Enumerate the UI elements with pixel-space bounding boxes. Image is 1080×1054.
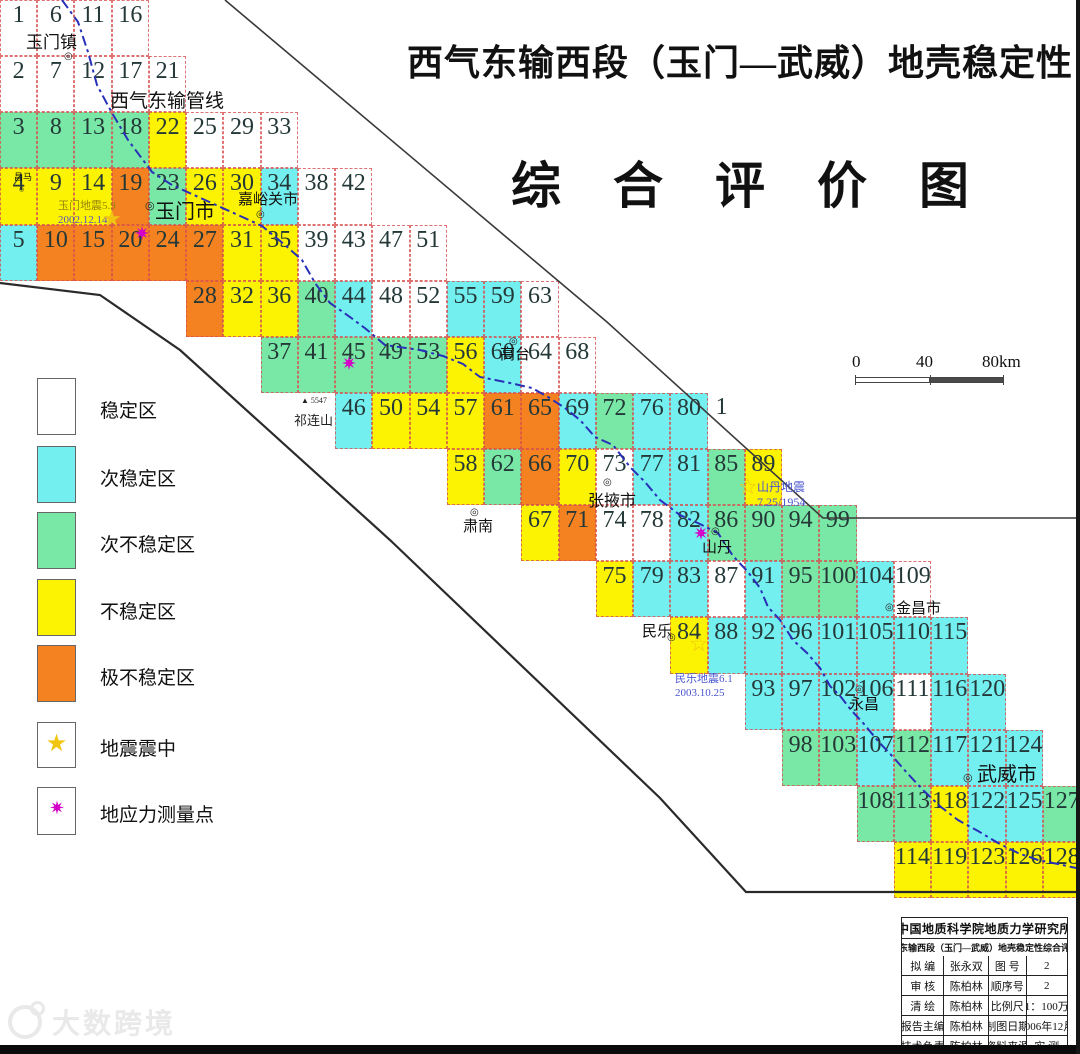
city-marker-icon: ◎ bbox=[963, 773, 973, 784]
grid-cell: 28 bbox=[186, 281, 223, 337]
table-cell: 审 核 bbox=[902, 976, 943, 995]
table-cell: 2006年12月 bbox=[1026, 1016, 1068, 1035]
bottom-frame-bar bbox=[0, 1045, 1080, 1054]
grid-cell: 92 bbox=[745, 617, 782, 673]
table-row: 拟 编张永双图 号2 bbox=[902, 956, 1067, 975]
grid-cell: 42 bbox=[335, 168, 372, 224]
city-marker-icon: ◎ bbox=[470, 508, 479, 518]
grid-cell: 88 bbox=[708, 617, 745, 673]
city-label: 永昌 bbox=[849, 698, 879, 713]
grid-cell: 58 bbox=[447, 449, 484, 505]
grid-cell: 90 bbox=[745, 505, 782, 561]
grid-cell: 118 bbox=[931, 786, 968, 842]
grid-cell: 111 bbox=[894, 674, 931, 730]
table-cell: 拟 编 bbox=[902, 956, 943, 975]
grid-cell: 7 bbox=[37, 56, 74, 112]
legend-swatch-o bbox=[37, 645, 76, 702]
mountain-peak-icon: ▲ 5547 bbox=[301, 396, 327, 405]
grid-cell: 62 bbox=[484, 449, 521, 505]
city-label: 高台 bbox=[500, 348, 530, 363]
table-cell: 张永双 bbox=[943, 956, 987, 975]
scale-bar-tick bbox=[930, 375, 931, 385]
grid-cell: 8 bbox=[37, 112, 74, 168]
grid-cell: 2 bbox=[0, 56, 37, 112]
city-label: 玉门市 bbox=[155, 202, 215, 222]
legend-swatch-c bbox=[37, 446, 76, 503]
grid-cell: 52 bbox=[410, 281, 447, 337]
grid-cell: 61 bbox=[484, 393, 521, 449]
grid-cell: 119 bbox=[931, 842, 968, 898]
grid-cell: 98 bbox=[782, 730, 819, 786]
city-label: 嘉峪关市 bbox=[238, 193, 298, 208]
grid-cell: 5 bbox=[0, 225, 37, 281]
table-cell: 图 号 bbox=[988, 956, 1026, 975]
grid-cell: 54 bbox=[410, 393, 447, 449]
grid-cell: 57 bbox=[447, 393, 484, 449]
epicenter-star-icon: ★ bbox=[38, 729, 75, 758]
grid-cell: 116 bbox=[931, 674, 968, 730]
grid-cell: 15 bbox=[74, 225, 111, 281]
grid-cell: 47 bbox=[372, 225, 409, 281]
grid-cell: 97 bbox=[782, 674, 819, 730]
table-cell: 顺序号 bbox=[988, 976, 1026, 995]
grid-cell: 105 bbox=[857, 617, 894, 673]
table-row: 报告主编陈柏林制图日期2006年12月 bbox=[902, 1015, 1067, 1035]
grid-cell: 31 bbox=[223, 225, 260, 281]
scale-bar-tick bbox=[1003, 375, 1004, 385]
grid-cell: 18 bbox=[112, 112, 149, 168]
grid-cell: 123 bbox=[968, 842, 1005, 898]
city-marker-icon: ◎ bbox=[885, 603, 894, 613]
grid-cell: 76 bbox=[633, 393, 670, 449]
grid-cell: 68 bbox=[559, 337, 596, 393]
grid-cell: 41 bbox=[298, 337, 335, 393]
table-cell: 比例尺 bbox=[988, 996, 1026, 1015]
legend-label: 次不稳定区 bbox=[100, 530, 195, 557]
grid-cell: 1 bbox=[708, 393, 745, 449]
legend-label: 地震震中 bbox=[100, 734, 176, 761]
grid-cell: 96 bbox=[782, 617, 819, 673]
table-row: 清 绘陈柏林比例尺1：100万 bbox=[902, 995, 1067, 1015]
grid-cell: 79 bbox=[633, 561, 670, 617]
grid-cell: 120 bbox=[968, 674, 1005, 730]
grid-cell: 40 bbox=[298, 281, 335, 337]
legend-swatch-w bbox=[37, 378, 76, 435]
grid-cell: 75 bbox=[596, 561, 633, 617]
earthquake-label: 山丹地震7.25/1954 bbox=[757, 480, 805, 510]
map-title: 西气东输西段（玉门—武威）地壳稳定性 bbox=[400, 34, 1080, 86]
watermark-text: 大数跨境 bbox=[52, 1002, 176, 1042]
grid-cell: 95 bbox=[782, 561, 819, 617]
watermark-logo-icon bbox=[8, 1005, 42, 1039]
grid-cell: 36 bbox=[261, 281, 298, 337]
scale-tick-80km: 80km bbox=[982, 352, 1021, 372]
legend-label: 极不稳定区 bbox=[100, 663, 195, 690]
grid-cell: 22 bbox=[149, 112, 186, 168]
grid-cell: 11 bbox=[74, 0, 111, 56]
grid-cell: 43 bbox=[335, 225, 372, 281]
grid-cell: 25 bbox=[186, 112, 223, 168]
epicenter-star-icon: ★ bbox=[102, 208, 122, 230]
stress-measure-point-icon bbox=[38, 799, 75, 820]
grid-cell: 55 bbox=[447, 281, 484, 337]
grid-cell: 48 bbox=[372, 281, 409, 337]
grid-cell: 113 bbox=[894, 786, 931, 842]
grid-cell: 66 bbox=[521, 449, 558, 505]
title-block-table: 中国地质科学院地质力学研究所 西气东输西段（玉门—武威）地壳稳定性综合评价图 拟… bbox=[901, 917, 1068, 1054]
legend-label: 次稳定区 bbox=[100, 464, 176, 491]
grid-cell: 101 bbox=[819, 617, 856, 673]
map-stage: 1234567891011121314151617181920212223242… bbox=[0, 0, 1080, 1054]
grid-cell: 110 bbox=[894, 617, 931, 673]
grid-cell: 72 bbox=[596, 393, 633, 449]
table-map-title: 西气东输西段（玉门—武威）地壳稳定性综合评价图 bbox=[902, 939, 1067, 956]
table-cell: 2 bbox=[1026, 956, 1068, 975]
table-cell: 陈柏林 bbox=[943, 976, 987, 995]
grid-cell: 114 bbox=[894, 842, 931, 898]
city-marker-icon: ◎ bbox=[509, 337, 518, 347]
city-label: 武威市 bbox=[977, 765, 1037, 785]
stress-measure-point-icon bbox=[134, 225, 150, 246]
grid-cell: 13 bbox=[74, 112, 111, 168]
grid-cell: 122 bbox=[968, 786, 1005, 842]
grid-cell: 81 bbox=[670, 449, 707, 505]
grid-cell: 49 bbox=[372, 337, 409, 393]
grid-cell: 126 bbox=[1006, 842, 1043, 898]
scale-bar-tick bbox=[855, 375, 856, 385]
city-label: 玉门镇 bbox=[26, 34, 77, 51]
grid-cell: 27 bbox=[186, 225, 223, 281]
city-marker-icon: ◎ bbox=[256, 210, 265, 220]
grid-cell: 80 bbox=[670, 393, 707, 449]
grid-cell: 32 bbox=[223, 281, 260, 337]
grid-cell: 65 bbox=[521, 393, 558, 449]
grid-cell: 93 bbox=[745, 674, 782, 730]
watermark: 大数跨境 bbox=[8, 1002, 176, 1042]
grid-cell: 87 bbox=[708, 561, 745, 617]
grid-cell: 112 bbox=[894, 730, 931, 786]
grid-cell: 103 bbox=[819, 730, 856, 786]
grid-cell: 51 bbox=[410, 225, 447, 281]
right-frame-bar bbox=[1076, 0, 1080, 1054]
grid-cell: 69 bbox=[559, 393, 596, 449]
grid-cell: 67 bbox=[521, 505, 558, 561]
grid-cell: 71 bbox=[559, 505, 596, 561]
grid-cell: 35 bbox=[261, 225, 298, 281]
table-cell: 清 绘 bbox=[902, 996, 943, 1015]
table-cell: 陈柏林 bbox=[943, 996, 987, 1015]
scale-bar: 0 40 80km bbox=[852, 352, 1012, 392]
grid-cell: 64 bbox=[521, 337, 558, 393]
grid-cell: 39 bbox=[298, 225, 335, 281]
stress-measure-point-icon bbox=[693, 525, 709, 546]
map-subtitle: 综合评价图 bbox=[430, 146, 1050, 218]
legend-swatch-flower bbox=[37, 787, 76, 835]
grid-cell: 94 bbox=[782, 505, 819, 561]
grid-cell: 3 bbox=[0, 112, 37, 168]
grid-cell: 59 bbox=[484, 281, 521, 337]
grid-cell: 53 bbox=[410, 337, 447, 393]
grid-cell: 78 bbox=[633, 505, 670, 561]
city-label: 昌马 bbox=[14, 173, 32, 182]
grid-cell: 108 bbox=[857, 786, 894, 842]
city-label: 张掖市 bbox=[588, 494, 636, 510]
earthquake-label: 民乐地震6.12003.10.25 bbox=[675, 673, 733, 701]
table-row: 审 核陈柏林顺序号2 bbox=[902, 975, 1067, 995]
table-cell: 报告主编 bbox=[902, 1016, 943, 1035]
grid-cell: 125 bbox=[1006, 786, 1043, 842]
grid-cell: 37 bbox=[261, 337, 298, 393]
city-marker-icon: ◎ bbox=[145, 201, 155, 212]
city-label: 肃南 bbox=[463, 520, 493, 535]
legend-label: 稳定区 bbox=[100, 396, 157, 423]
grid-cell: 74 bbox=[596, 505, 633, 561]
stress-measure-point-icon bbox=[341, 355, 357, 376]
grid-cell: 63 bbox=[521, 281, 558, 337]
city-marker-icon: ◎ bbox=[19, 187, 24, 193]
table-cell: 制图日期 bbox=[988, 1016, 1026, 1035]
grid-cell: 115 bbox=[931, 617, 968, 673]
grid-cell: 83 bbox=[670, 561, 707, 617]
legend-label: 不稳定区 bbox=[100, 597, 176, 624]
grid-cell: 33 bbox=[261, 112, 298, 168]
grid-cell: 46 bbox=[335, 393, 372, 449]
pipeline-label: 西气东输管线 bbox=[110, 86, 224, 113]
scale-tick-0: 0 bbox=[852, 352, 861, 372]
city-marker-icon: ◎ bbox=[711, 527, 720, 537]
table-cell: 2 bbox=[1026, 976, 1068, 995]
legend-label: 地应力测量点 bbox=[100, 800, 214, 827]
grid-cell: 107 bbox=[857, 730, 894, 786]
legend-swatch-y bbox=[37, 579, 76, 636]
city-marker-icon: ◎ bbox=[64, 52, 73, 62]
table-rows: 拟 编张永双图 号2审 核陈柏林顺序号2清 绘陈柏林比例尺1：100万报告主编陈… bbox=[902, 956, 1067, 1054]
legend-swatch-star: ★ bbox=[37, 722, 76, 768]
city-label: 金昌市 bbox=[896, 602, 941, 617]
grid-cell: 50 bbox=[372, 393, 409, 449]
city-marker-icon: ◎ bbox=[667, 633, 676, 643]
grid-cell: 38 bbox=[298, 168, 335, 224]
epicenter-star-icon: ☆ bbox=[738, 476, 758, 498]
grid-cell: 77 bbox=[633, 449, 670, 505]
grid-cell: 127 bbox=[1043, 786, 1080, 842]
grid-cell: 12 bbox=[74, 56, 111, 112]
scale-bar-segment-dark bbox=[930, 377, 1004, 383]
grid-cell: 16 bbox=[112, 0, 149, 56]
city-marker-icon: ◎ bbox=[855, 685, 864, 695]
legend-swatch-g bbox=[37, 512, 76, 569]
grid-cell: 128 bbox=[1043, 842, 1080, 898]
grid-cell: 24 bbox=[149, 225, 186, 281]
epicenter-star-icon: ☆ bbox=[689, 633, 709, 655]
grid-cell: 10 bbox=[37, 225, 74, 281]
table-cell: 1：100万 bbox=[1026, 996, 1068, 1015]
scale-tick-40: 40 bbox=[916, 352, 933, 372]
grid-cell: 100 bbox=[819, 561, 856, 617]
grid-cell: 91 bbox=[745, 561, 782, 617]
scale-bar-segment-light bbox=[855, 377, 930, 383]
grid-cell: 29 bbox=[223, 112, 260, 168]
mountain-name-label: 祁连山 bbox=[294, 410, 333, 429]
table-institute: 中国地质科学院地质力学研究所 bbox=[902, 918, 1067, 938]
city-marker-icon: ◎ bbox=[603, 478, 612, 488]
grid-cell: 44 bbox=[335, 281, 372, 337]
table-cell: 陈柏林 bbox=[943, 1016, 987, 1035]
grid-cell: 56 bbox=[447, 337, 484, 393]
grid-cell: 99 bbox=[819, 505, 856, 561]
